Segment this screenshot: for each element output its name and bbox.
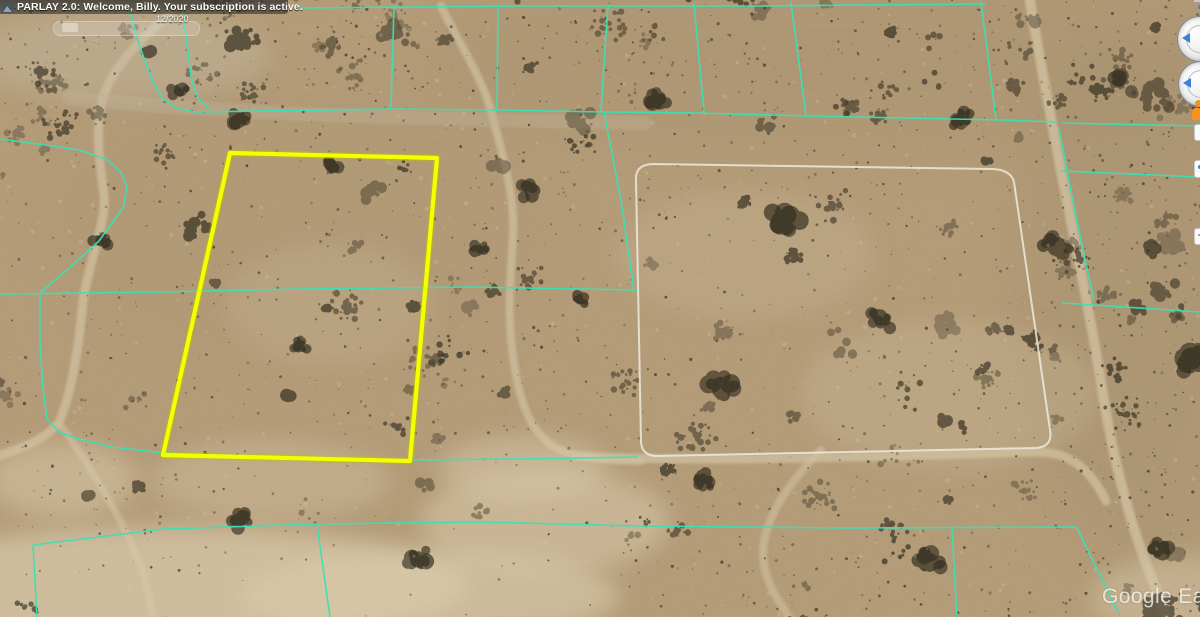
- zoom-slider-handle[interactable]: [1194, 0, 1200, 2]
- zoom-out-button[interactable]: [1194, 228, 1200, 245]
- look-left-arrow-icon[interactable]: [1182, 33, 1190, 43]
- app-title-text: PARLAY 2.0: Welcome, Billy. Your subscri…: [17, 1, 303, 13]
- app-title-bar: PARLAY 2.0: Welcome, Billy. Your subscri…: [0, 0, 288, 14]
- google-earth-viewport[interactable]: PARLAY 2.0: Welcome, Billy. Your subscri…: [0, 0, 1200, 617]
- satellite-map[interactable]: [0, 0, 1200, 617]
- time-slider-handle[interactable]: [62, 23, 78, 32]
- google-earth-watermark: Google Ear: [1102, 585, 1200, 609]
- move-left-arrow-icon[interactable]: [1183, 78, 1191, 88]
- pegman-body: [1192, 108, 1200, 120]
- street-view-pegman-icon[interactable]: [1192, 100, 1200, 124]
- parlay-app-icon: [2, 2, 13, 13]
- zoom-in-button[interactable]: [1194, 124, 1200, 141]
- pegman-head: [1195, 100, 1200, 107]
- zoom-slider-upper[interactable]: [1194, 160, 1200, 178]
- imagery-date-label: 12/2020: [156, 14, 189, 24]
